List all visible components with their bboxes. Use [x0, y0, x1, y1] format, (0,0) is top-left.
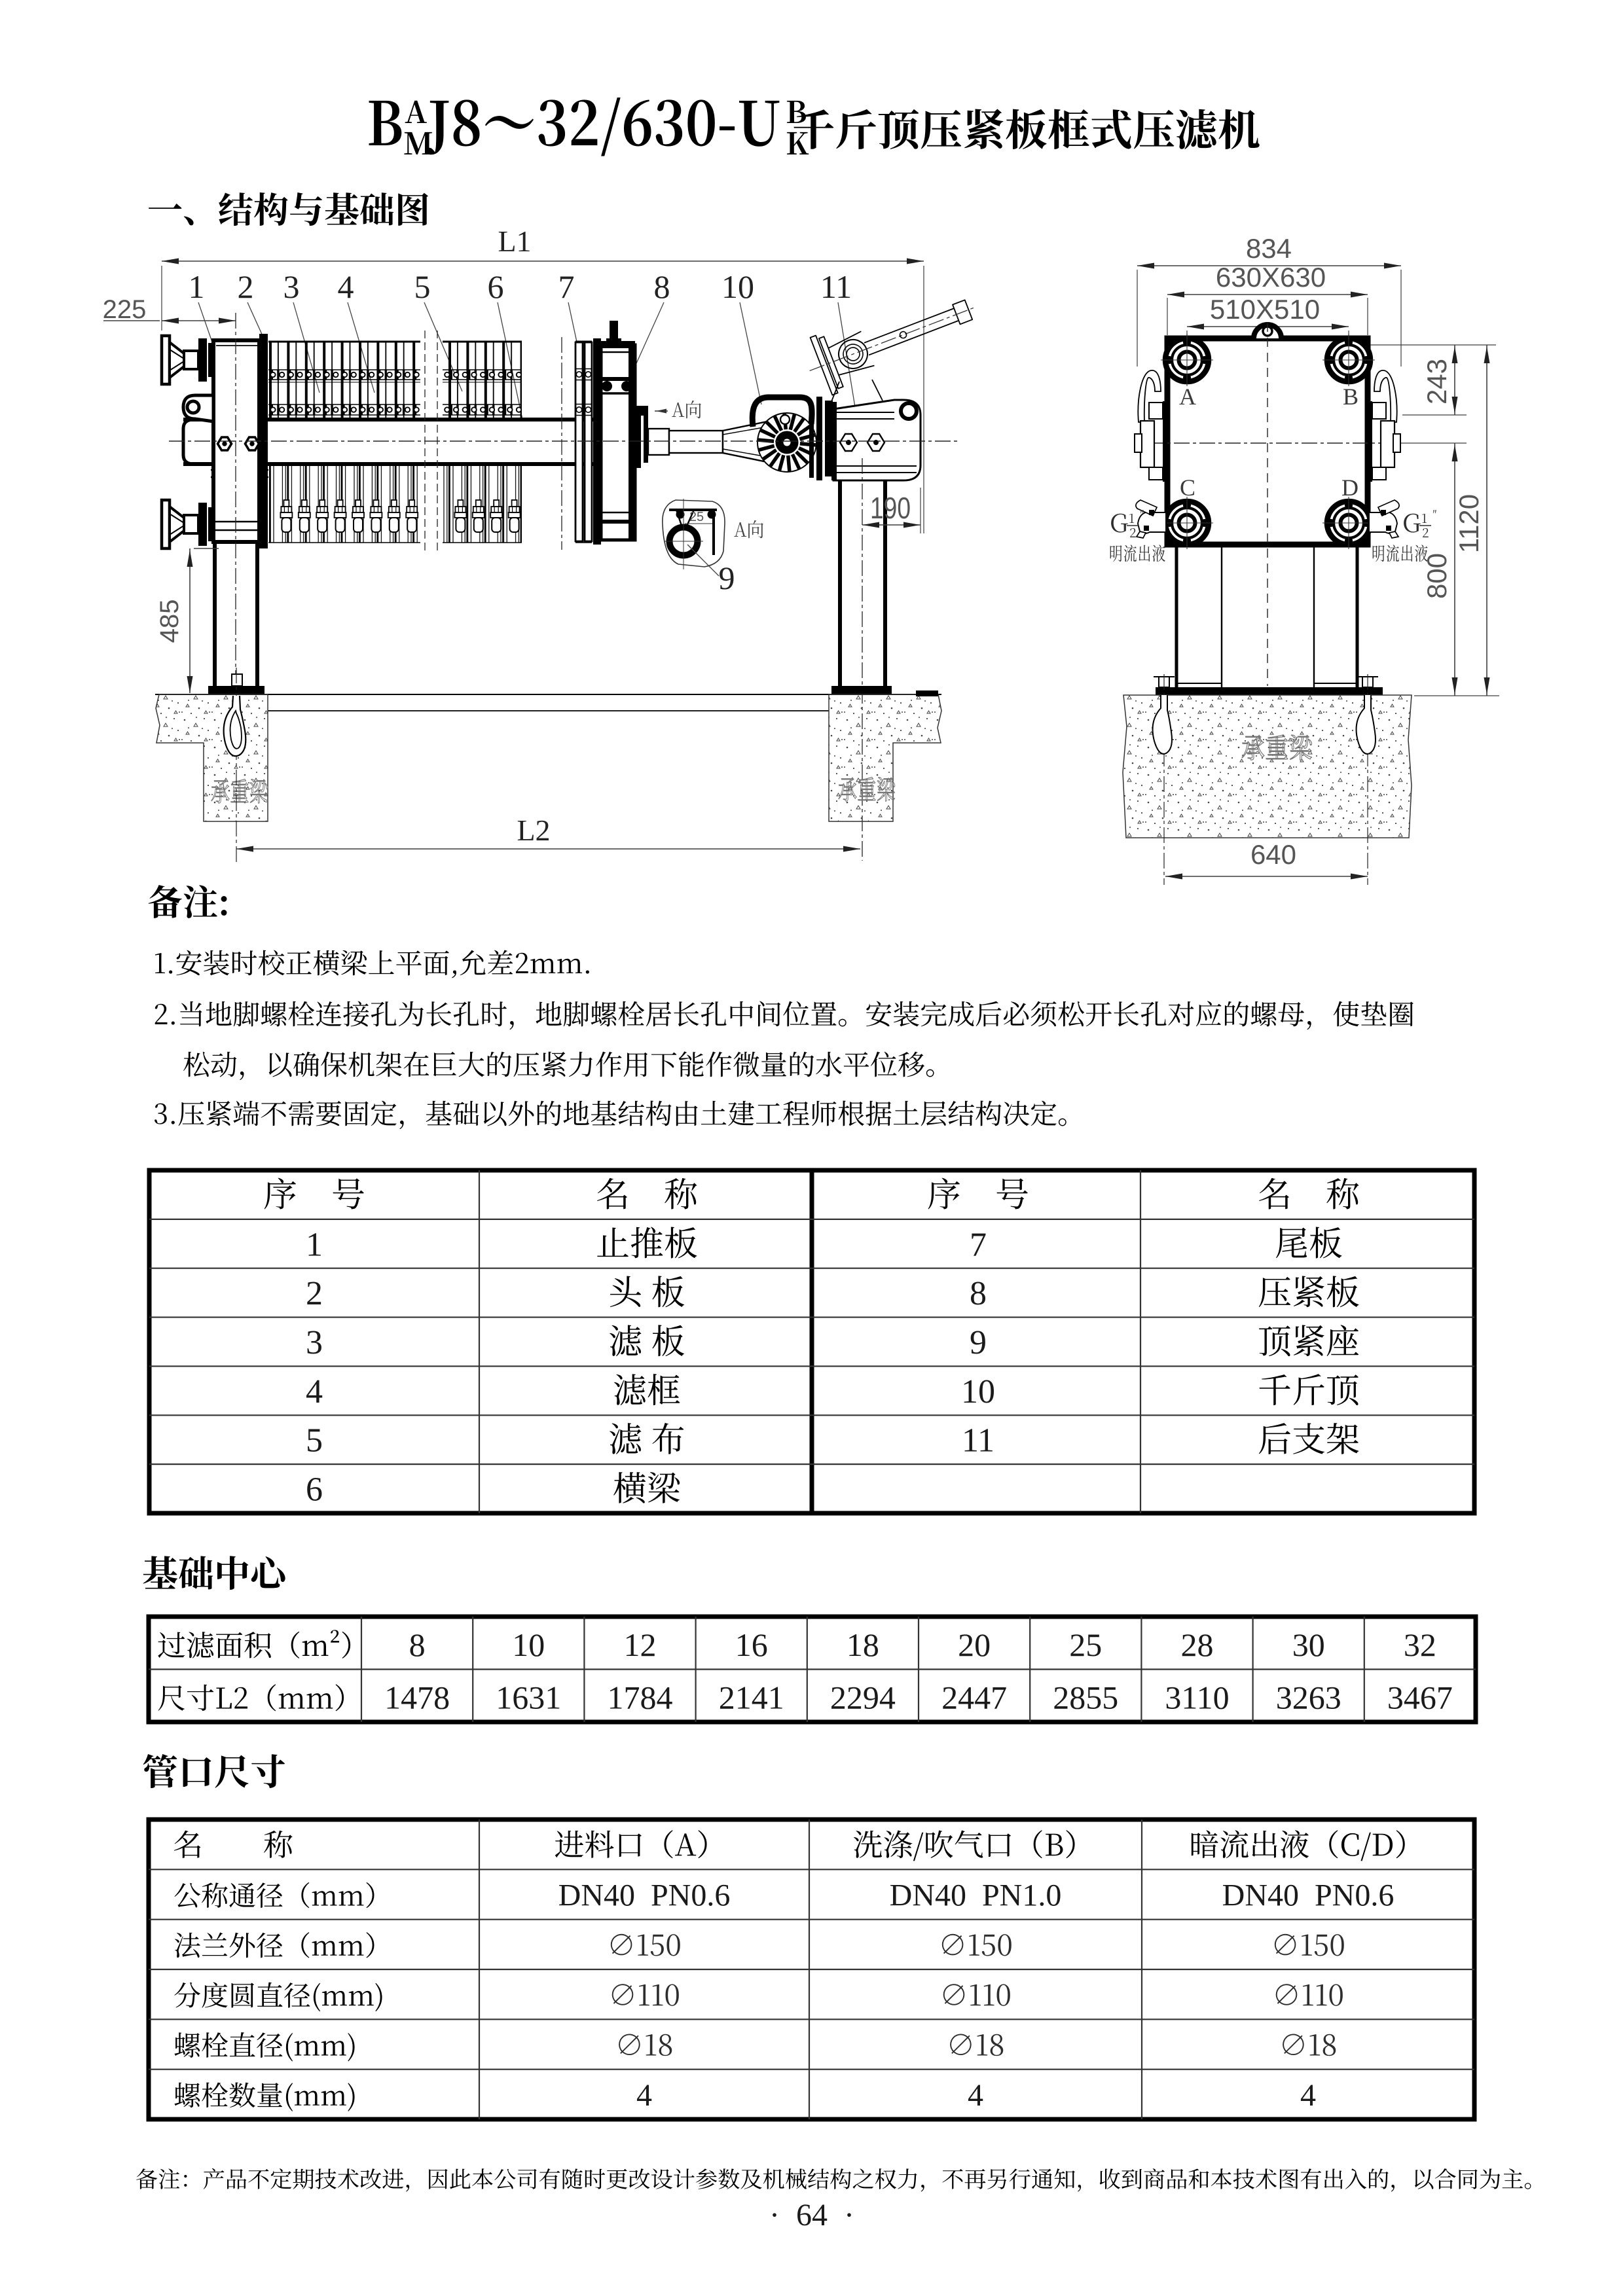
svg-text:B: B [1343, 384, 1359, 410]
svg-text:3: 3 [306, 1324, 323, 1361]
svg-text:10: 10 [721, 268, 754, 305]
svg-text:A: A [1179, 384, 1196, 410]
svg-text:4: 4 [968, 2078, 983, 2113]
svg-text:C: C [1180, 475, 1195, 501]
svg-text:4: 4 [306, 1373, 323, 1410]
svg-text:485: 485 [155, 600, 184, 643]
svg-text:32: 32 [1404, 1626, 1436, 1663]
svg-text:6: 6 [306, 1471, 323, 1509]
svg-text:3110: 3110 [1165, 1679, 1229, 1716]
svg-text:2855: 2855 [1053, 1679, 1118, 1716]
svg-text:834: 834 [1246, 233, 1292, 264]
svg-text:12: 12 [624, 1626, 657, 1663]
svg-text:4: 4 [636, 2078, 652, 2113]
svg-text:7: 7 [970, 1226, 987, 1263]
svg-text:64: 64 [796, 2198, 828, 2233]
svg-text:190: 190 [870, 491, 911, 525]
svg-text:2447: 2447 [941, 1679, 1007, 1716]
svg-text:510X510: 510X510 [1210, 294, 1320, 325]
svg-text:1631: 1631 [496, 1679, 561, 1716]
svg-text:11: 11 [962, 1422, 994, 1460]
svg-text:800: 800 [1421, 553, 1452, 599]
svg-text:18: 18 [847, 1626, 879, 1663]
svg-text:·: · [844, 2198, 854, 2233]
svg-text:1: 1 [189, 268, 205, 305]
svg-text:2: 2 [306, 1275, 323, 1312]
svg-text:25: 25 [689, 510, 704, 524]
svg-text:·: · [769, 2198, 780, 2233]
svg-text:L1: L1 [498, 224, 531, 258]
svg-text:7: 7 [558, 268, 575, 305]
svg-text:1784: 1784 [608, 1679, 673, 1716]
svg-text:243: 243 [1421, 359, 1452, 404]
svg-text:1120: 1120 [1453, 494, 1484, 553]
svg-text:D: D [1341, 475, 1359, 501]
svg-text:640: 640 [1250, 839, 1296, 870]
svg-text:10: 10 [961, 1373, 995, 1410]
svg-text:9: 9 [719, 560, 735, 596]
svg-text:25: 25 [1069, 1626, 1102, 1663]
svg-text:30: 30 [1292, 1626, 1325, 1663]
svg-text:3263: 3263 [1276, 1679, 1341, 1716]
svg-text:6: 6 [488, 268, 504, 305]
svg-text:8: 8 [970, 1275, 987, 1312]
svg-text:8: 8 [654, 268, 670, 305]
svg-text:2: 2 [238, 268, 254, 305]
svg-text:5: 5 [414, 268, 431, 305]
svg-text:10: 10 [512, 1626, 545, 1663]
svg-text:L2: L2 [517, 814, 550, 847]
svg-text:20: 20 [958, 1626, 991, 1663]
svg-text:8: 8 [409, 1626, 426, 1663]
svg-text:1478: 1478 [384, 1679, 450, 1716]
svg-text:630X630: 630X630 [1216, 262, 1326, 293]
svg-text:2294: 2294 [830, 1679, 896, 1716]
svg-text:DN40 PN1.0: DN40 PN1.0 [890, 1878, 1062, 1913]
svg-text:1: 1 [306, 1226, 323, 1263]
svg-text:DN40 PN0.6: DN40 PN0.6 [1222, 1878, 1395, 1913]
svg-text:3467: 3467 [1387, 1679, 1453, 1716]
svg-text:2141: 2141 [719, 1679, 784, 1716]
svg-text:5: 5 [306, 1422, 323, 1460]
svg-text:16: 16 [735, 1626, 768, 1663]
svg-text:4: 4 [1300, 2078, 1316, 2113]
svg-text:DN40 PN0.6: DN40 PN0.6 [558, 1878, 731, 1913]
svg-text:3: 3 [283, 268, 300, 305]
svg-text:225: 225 [103, 295, 147, 324]
svg-text:9: 9 [970, 1324, 987, 1361]
svg-text:28: 28 [1181, 1626, 1214, 1663]
svg-text:11: 11 [820, 268, 852, 305]
svg-text:4: 4 [338, 268, 354, 305]
